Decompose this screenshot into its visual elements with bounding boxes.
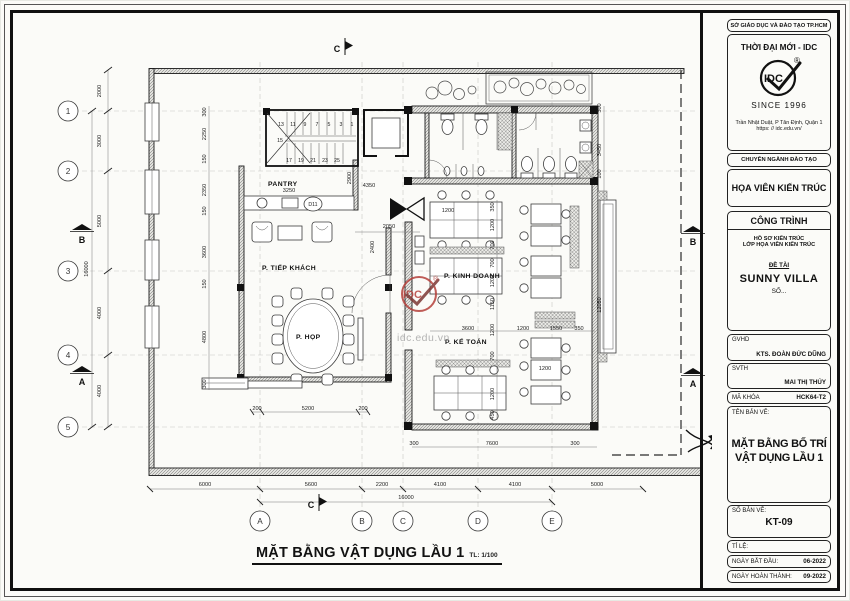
room-label-reception: P. TIẾP KHÁCH — [262, 262, 316, 272]
svg-text:1550: 1550 — [550, 326, 562, 332]
svg-text:7600: 7600 — [486, 441, 498, 447]
svg-text:5: 5 — [328, 122, 331, 128]
titleblock-gvhd: GVHDKTS. ĐOÀN ĐỨC DŨNG — [727, 334, 831, 361]
titleblock-drawing-number: SỐ BẢN VẼ: KT-09 — [727, 505, 831, 538]
titleblock-makhoa: MÃ KHÓAHCK64-T2 — [727, 391, 831, 404]
grid-bubble-col-b: B — [352, 511, 372, 531]
svg-text:2050: 2050 — [383, 224, 395, 230]
svg-text:4350: 4350 — [363, 183, 375, 189]
svg-text:7: 7 — [316, 122, 319, 128]
drawing-name-line2: VẬT DỤNG LẦU 1 — [728, 452, 830, 464]
svg-text:700: 700 — [490, 258, 496, 267]
grid-bubble-col-c: C — [393, 511, 413, 531]
section-marker-a-left: A — [70, 366, 94, 387]
svg-text:3450: 3450 — [597, 144, 603, 156]
floor-plan-canvas: 13 11 9 7 5 3 1 15 17 19 21 23 25 — [0, 0, 712, 601]
svg-text:300: 300 — [202, 379, 208, 388]
svg-text:150: 150 — [202, 206, 208, 215]
svg-text:3600: 3600 — [202, 246, 208, 258]
svg-text:13: 13 — [278, 122, 284, 128]
svg-text:16000: 16000 — [398, 495, 414, 501]
svg-text:16000: 16000 — [84, 261, 90, 277]
svg-text:300: 300 — [570, 441, 579, 447]
svg-text:3250: 3250 — [283, 188, 295, 194]
svg-text:200: 200 — [358, 406, 367, 412]
svg-text:1150: 1150 — [490, 298, 496, 310]
svg-text:C: C — [400, 517, 406, 526]
svg-text:300: 300 — [597, 103, 603, 112]
break-arrow — [686, 430, 712, 452]
idc-logo-icon: IDC ® — [728, 53, 832, 101]
svg-text:300: 300 — [202, 107, 208, 116]
drawing-number-value: KT-09 — [728, 517, 830, 528]
svg-text:2250: 2250 — [202, 128, 208, 140]
svg-text:15: 15 — [277, 138, 283, 144]
section-marker-b-left: B — [70, 224, 94, 245]
section-marker-c-top: C — [334, 38, 353, 55]
svg-text:9: 9 — [304, 122, 307, 128]
room-label-pantry: PANTRY — [268, 181, 298, 188]
svg-text:200: 200 — [252, 406, 261, 412]
svg-text:25: 25 — [334, 158, 340, 164]
svg-text:C: C — [334, 44, 341, 54]
svg-text:2000: 2000 — [97, 85, 103, 97]
svg-text:700: 700 — [490, 240, 496, 249]
svg-text:B: B — [359, 517, 365, 526]
drawing-scale: TL: 1/100 — [469, 552, 497, 559]
svg-text:2200: 2200 — [376, 482, 388, 488]
svg-text:19: 19 — [298, 158, 304, 164]
titleblock-start-date: NGÀY BẮT ĐẦU:06-2022 — [727, 555, 831, 568]
watermark-url: idc.edu.vn — [397, 332, 450, 344]
svg-text:1200: 1200 — [517, 326, 529, 332]
titleblock-training: CHUYÊN NGÀNH ĐÀO TẠO — [727, 153, 831, 167]
svg-text:D: D — [475, 517, 481, 526]
titleblock-scale: TỈ LỆ: — [727, 540, 831, 553]
svg-text:5200: 5200 — [302, 406, 314, 412]
stair-numbers: 13 11 9 7 5 3 1 15 17 19 21 23 25 — [277, 122, 353, 164]
brand-since: SINCE 1996 — [728, 101, 830, 110]
svg-text:3600: 3600 — [462, 326, 474, 332]
svg-text:®: ® — [433, 275, 439, 283]
terrace-garden — [426, 72, 592, 104]
svg-text:3: 3 — [340, 122, 343, 128]
grid-bubble-col-e: E — [542, 511, 562, 531]
svg-text:150: 150 — [202, 279, 208, 288]
svg-text:A: A — [257, 517, 263, 526]
topic-value: SUNNY VILLA — [728, 273, 830, 285]
titleblock-agency: SỞ GIÁO DỤC VÀ ĐÀO TẠO TP.HCM — [727, 19, 831, 32]
elevator — [364, 110, 408, 158]
brand-url: https: // idc.edu.vn/ — [728, 126, 830, 132]
svg-text:23: 23 — [322, 158, 328, 164]
door-tag: D11 — [308, 202, 317, 208]
staircase: 13 11 9 7 5 3 1 15 17 19 21 23 25 — [266, 110, 358, 166]
svg-text:1: 1 — [351, 122, 354, 128]
titleblock-major: HỌA VIÊN KIẾN TRÚC — [727, 169, 831, 207]
svg-text:5: 5 — [66, 423, 71, 432]
grid-bubble-row-1: 1 — [58, 101, 78, 121]
drawing-title-text: MẶT BẰNG VẬT DỤNG LẦU 1 — [256, 545, 464, 561]
svg-text:B: B — [690, 237, 697, 247]
svg-text:4100: 4100 — [509, 482, 521, 488]
titleblock-project: CÔNG TRÌNH HỒ SƠ KIẾN TRÚC LỚP HỌA VIÊN … — [727, 211, 831, 331]
svg-text:150: 150 — [202, 154, 208, 163]
svg-text:1200: 1200 — [539, 366, 551, 372]
svg-text:2350: 2350 — [202, 184, 208, 196]
svg-text:100: 100 — [597, 169, 603, 178]
drawing-sheet: 13 11 9 7 5 3 1 15 17 19 21 23 25 — [0, 0, 850, 601]
grid-bubble-col-d: D — [468, 511, 488, 531]
svg-text:E: E — [549, 517, 555, 526]
site-boundary — [145, 69, 702, 476]
svg-text:300: 300 — [409, 441, 418, 447]
svg-text:350: 350 — [574, 326, 583, 332]
svg-text:1: 1 — [66, 107, 71, 116]
topic-number: SỐ... — [728, 288, 830, 295]
svg-text:1200: 1200 — [490, 219, 496, 231]
svg-text:4: 4 — [66, 351, 71, 360]
right-yard — [598, 191, 616, 362]
titleblock-divider — [700, 13, 703, 588]
svg-text:C: C — [308, 500, 315, 510]
meeting-room: P. HỌP — [202, 288, 363, 389]
room-label-accounting: P. KẾ TOÁN — [445, 336, 487, 346]
toilets — [429, 113, 593, 178]
svg-text:700: 700 — [490, 351, 496, 360]
svg-text:450: 450 — [490, 410, 496, 419]
section-marker-c-bottom: C — [308, 494, 327, 511]
svg-text:1200: 1200 — [442, 208, 454, 214]
svg-text:4000: 4000 — [97, 307, 103, 319]
svg-text:6000: 6000 — [199, 482, 211, 488]
grid-bubble-row-2: 2 — [58, 161, 78, 181]
grid-bubble-row-4: 4 — [58, 345, 78, 365]
svg-text:21: 21 — [310, 158, 316, 164]
svg-text:B: B — [79, 235, 86, 245]
accounting-office: P. KẾ TOÁN — [434, 336, 570, 420]
grid-bubble-col-a: A — [250, 511, 270, 531]
titleblock-svth: SVTHMAI THỊ THÚY — [727, 363, 831, 389]
svg-text:1200: 1200 — [490, 388, 496, 400]
grid-bubble-row-5: 5 — [58, 417, 78, 437]
project-header: CÔNG TRÌNH — [728, 212, 830, 230]
svg-text:350: 350 — [490, 202, 496, 211]
drawing-name-line1: MẶT BẰNG BỐ TRÍ — [728, 438, 830, 450]
svg-text:12050: 12050 — [597, 297, 603, 313]
room-label-meeting: P. HỌP — [296, 334, 321, 341]
titleblock-finish-date: NGÀY HOÀN THÀNH:09-2022 — [727, 570, 831, 583]
svg-text:4100: 4100 — [434, 482, 446, 488]
topic-label: ĐỀ TÀI — [728, 262, 830, 269]
svg-text:2: 2 — [66, 167, 71, 176]
svg-text:1200: 1200 — [490, 275, 496, 287]
svg-text:5000: 5000 — [591, 482, 603, 488]
svg-text:3000: 3000 — [97, 135, 103, 147]
drawing-name-label: TÊN BẢN VẼ: — [728, 407, 830, 416]
svg-text:A: A — [690, 379, 697, 389]
svg-text:4000: 4000 — [97, 385, 103, 397]
grid-bubble-row-3: 3 — [58, 261, 78, 281]
project-line2: LỚP HỌA VIÊN KIẾN TRÚC — [728, 242, 830, 248]
svg-text:2400: 2400 — [370, 241, 376, 253]
titleblock-drawing-name: TÊN BẢN VẼ: MẶT BẰNG BỐ TRÍ VẬT DỤNG LẦU… — [727, 406, 831, 503]
drawing-title: MẶT BẰNG VẬT DỤNG LẦU 1 TL: 1/100 — [252, 545, 502, 565]
titleblock-brand: THỜI ĐẠI MỚI - IDC IDC ® SINCE 1996 Trần… — [727, 34, 831, 151]
svg-text:®: ® — [794, 56, 800, 65]
svg-text:5600: 5600 — [305, 482, 317, 488]
svg-text:17: 17 — [286, 158, 292, 164]
svg-text:1200: 1200 — [490, 324, 496, 336]
svg-text:11: 11 — [290, 122, 295, 128]
svg-text:2900: 2900 — [347, 172, 353, 184]
svg-text:5000: 5000 — [97, 215, 103, 227]
svg-text:A: A — [79, 377, 86, 387]
brand-name: THỜI ĐẠI MỚI - IDC — [728, 43, 830, 52]
svg-text:3: 3 — [66, 267, 71, 276]
svg-text:4800: 4800 — [202, 331, 208, 343]
pantry-room: D11 PANTRY — [244, 181, 354, 211]
